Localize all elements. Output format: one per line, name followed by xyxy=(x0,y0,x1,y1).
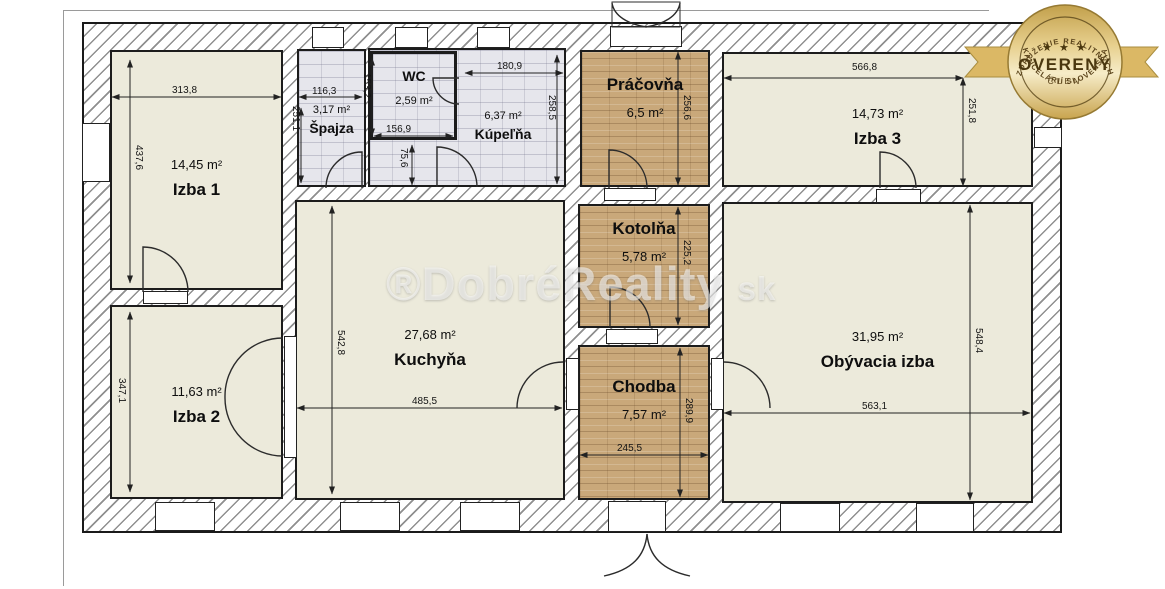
watermark-main: ®DobréReality xyxy=(386,257,724,310)
watermark: ®DobréReality sk xyxy=(386,256,776,311)
kupelna-name: Kúpeľňa xyxy=(475,127,532,142)
window-bottom-5 xyxy=(916,503,974,532)
certification-badge: ZDRUŽENIE REALITNÝCH ★ ★ ★ OVERENÝ ČLEN … xyxy=(958,0,1165,135)
chodba-name: Chodba xyxy=(612,378,675,397)
window-bottom-1 xyxy=(155,502,215,531)
window-top-3 xyxy=(477,27,510,48)
izba1-area: 14,45 m² xyxy=(171,158,222,172)
wc-name: WC xyxy=(402,69,425,84)
label-obyvacia: 31,95 m² Obývacia izba xyxy=(722,330,1033,372)
dim-chodba-height: 289,9 xyxy=(683,398,694,423)
dim-kuchyna-height: 542,8 xyxy=(335,330,346,355)
window-bottom-3 xyxy=(460,502,520,531)
chodba-area: 7,57 m² xyxy=(622,408,666,422)
kuchyna-name: Kuchyňa xyxy=(394,351,466,370)
door-threshold-izba1 xyxy=(143,291,188,304)
dim-izba1-height: 437,6 xyxy=(133,145,144,170)
izba3-area: 14,73 m² xyxy=(852,107,903,121)
dim-kupelna-sub: 75,6 xyxy=(398,148,409,167)
dim-chodba-width: 245,5 xyxy=(617,443,642,454)
window-bottom-2 xyxy=(340,502,400,531)
label-wc: WC 2,59 m² xyxy=(372,64,456,107)
obyvacia-area: 31,95 m² xyxy=(852,330,903,344)
door-threshold-kotolna xyxy=(606,329,658,344)
watermark-suffix: sk xyxy=(738,270,777,307)
dim-obyvacia-width: 563,1 xyxy=(862,401,887,412)
entrance-top-threshold xyxy=(610,26,682,47)
spajza-name: Špajza xyxy=(309,121,353,136)
door-threshold-pracovna xyxy=(604,188,656,201)
dim-izba2-height: 347,1 xyxy=(116,378,127,403)
spajza-area: 3,17 m² xyxy=(313,104,350,116)
dim-obyvacia-height: 548,4 xyxy=(973,328,984,353)
door-threshold-izba3 xyxy=(876,189,921,203)
wc-area: 2,59 m² xyxy=(395,95,432,107)
pracovna-name: Práčovňa xyxy=(607,76,684,95)
label-izba2: 11,63 m² Izba 2 xyxy=(110,385,283,427)
dim-spajza-height: 251,1 xyxy=(290,106,301,131)
izba2-area: 11,63 m² xyxy=(171,385,221,399)
dim-pracovna-height: 256,6 xyxy=(681,95,692,120)
kuchyna-area: 27,68 m² xyxy=(404,328,455,342)
dim-izba3-width: 566,8 xyxy=(852,62,877,73)
dim-kupelna-width: 180,9 xyxy=(497,61,522,72)
kupelna-area: 6,37 m² xyxy=(484,110,521,122)
entrance-bottom-threshold xyxy=(608,501,666,532)
kotolna-name: Kotolňa xyxy=(612,220,675,239)
dim-kupelna-height: 258,5 xyxy=(546,95,557,120)
dim-izba1-width: 313,8 xyxy=(172,85,197,96)
floor-plan: 14,45 m² Izba 1 11,63 m² Izba 2 3,17 m² … xyxy=(0,0,1165,589)
dim-wc-height: 153,2 xyxy=(361,73,372,98)
pracovna-area: 6,5 m² xyxy=(627,106,664,120)
dim-wc-width: 156,9 xyxy=(386,124,411,135)
window-bottom-4 xyxy=(780,503,840,532)
window-top-1 xyxy=(312,27,344,48)
izba2-name: Izba 2 xyxy=(173,408,220,427)
window-top-2 xyxy=(395,27,428,48)
badge-stars: ★ ★ ★ xyxy=(1042,42,1088,54)
izba3-name: Izba 3 xyxy=(854,130,901,149)
izba1-name: Izba 1 xyxy=(173,181,220,200)
dim-spajza-width: 116,3 xyxy=(312,86,336,97)
obyvacia-name: Obývacia izba xyxy=(821,353,934,372)
window-left xyxy=(82,123,110,182)
label-spajza: 3,17 m² Špajza xyxy=(296,104,367,136)
dim-kuchyna-width: 485,5 xyxy=(412,396,437,407)
